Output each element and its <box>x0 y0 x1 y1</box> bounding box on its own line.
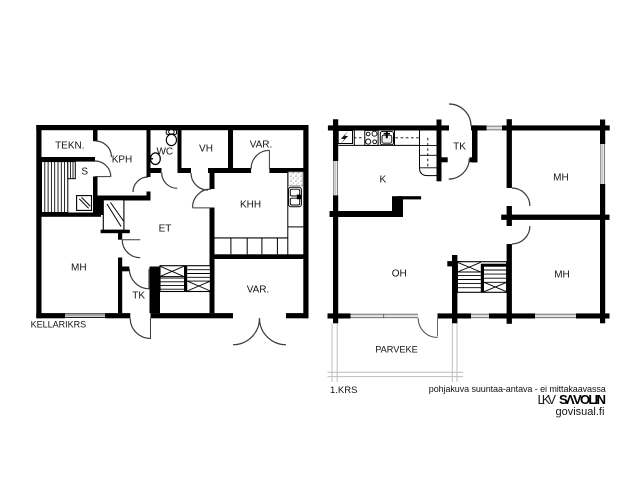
svg-text:KELLARIKRS: KELLARIKRS <box>31 320 87 330</box>
svg-text:MH: MH <box>554 270 570 281</box>
svg-text:MH: MH <box>71 263 87 274</box>
svg-text:K: K <box>379 175 386 186</box>
svg-text:KPH: KPH <box>112 155 133 166</box>
svg-text:OH: OH <box>392 269 407 280</box>
svg-text:TEKN.: TEKN. <box>55 141 84 152</box>
svg-text:LKVSΛVOLIN: LKVSΛVOLIN <box>538 392 607 407</box>
svg-text:TK: TK <box>453 141 466 152</box>
svg-text:S: S <box>81 167 88 178</box>
svg-text:MH: MH <box>553 173 569 184</box>
svg-text:ET: ET <box>159 224 172 235</box>
svg-text:govisual.fi: govisual.fi <box>556 406 605 418</box>
svg-text:WC: WC <box>156 147 173 158</box>
svg-text:1.KRS: 1.KRS <box>330 385 357 396</box>
svg-text:PARVEKE: PARVEKE <box>375 345 418 355</box>
svg-text:VAR.: VAR. <box>250 140 273 151</box>
svg-text:VH: VH <box>199 144 213 155</box>
svg-text:VAR.: VAR. <box>247 285 270 296</box>
svg-text:KHH: KHH <box>240 200 261 211</box>
svg-text:TK: TK <box>132 291 145 302</box>
